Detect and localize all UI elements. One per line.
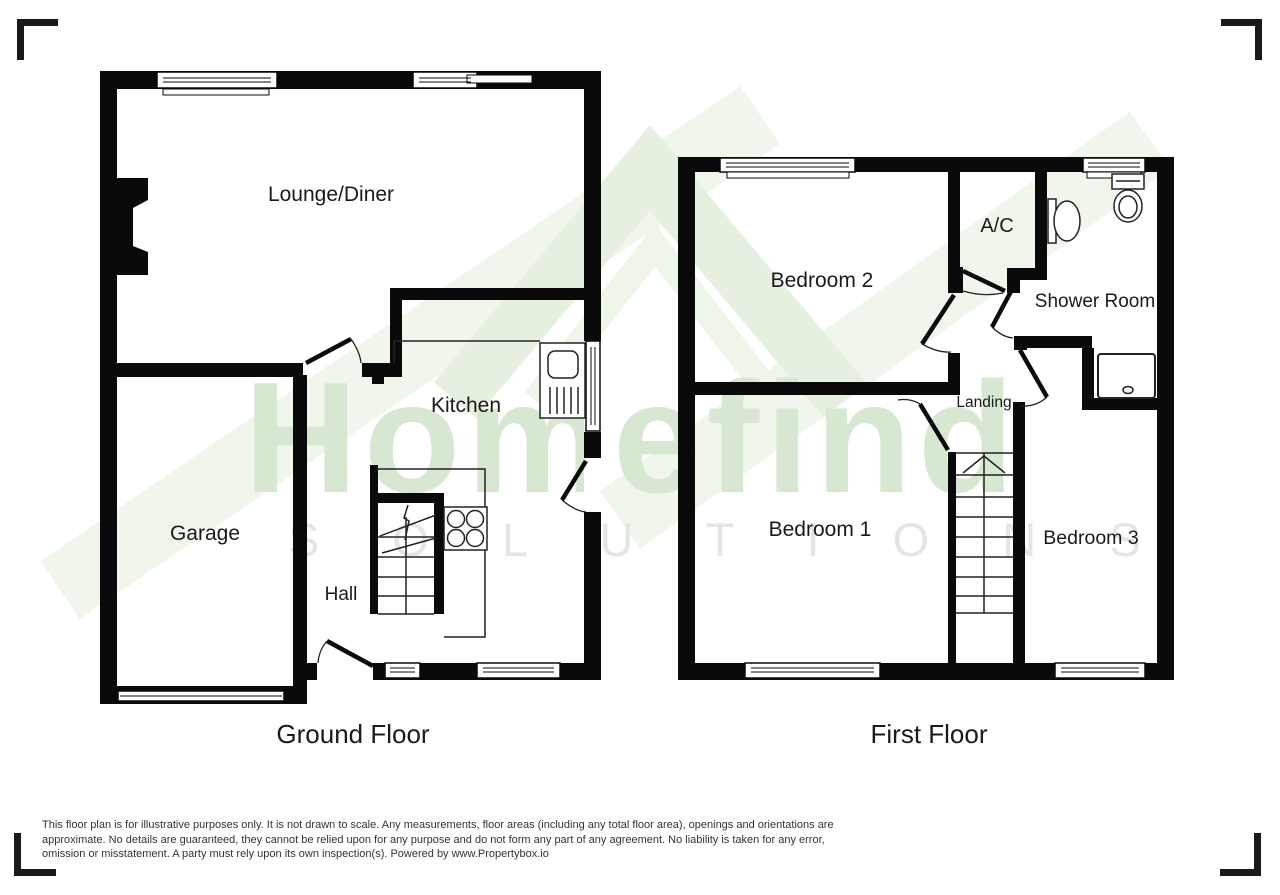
wall bbox=[390, 288, 402, 377]
door-opening bbox=[317, 663, 373, 680]
window bbox=[157, 72, 277, 88]
window bbox=[385, 663, 420, 678]
window bbox=[745, 663, 880, 678]
disclaimer-line-2: approximate. No details are guaranteed, … bbox=[42, 833, 942, 848]
disclaimer-line-3: omission or misstatement. A party must r… bbox=[42, 847, 942, 862]
room-label-ac: A/C bbox=[980, 215, 1013, 237]
room-label-landing: Landing bbox=[956, 394, 1011, 411]
room-label-lounge: Lounge/Diner bbox=[268, 183, 394, 206]
ground-floor-title: Ground Floor bbox=[276, 719, 430, 749]
window-sill bbox=[727, 172, 849, 178]
room-label-kitchen: Kitchen bbox=[431, 394, 501, 417]
room-label-bedroom2: Bedroom 2 bbox=[771, 269, 874, 292]
wall bbox=[678, 157, 695, 680]
wall bbox=[1157, 157, 1174, 680]
wall bbox=[948, 267, 963, 293]
wall bbox=[948, 353, 960, 395]
toilet-icon bbox=[1112, 174, 1144, 222]
window bbox=[1055, 663, 1145, 678]
chimney-recess bbox=[133, 200, 148, 252]
corner-bracket-top-left bbox=[21, 23, 59, 61]
door-leaf bbox=[1020, 350, 1047, 397]
room-label-hall: Hall bbox=[325, 584, 358, 605]
corner-bracket-bottom-right bbox=[1220, 833, 1258, 873]
window bbox=[467, 75, 532, 83]
disclaimer-line-1: This floor plan is for illustrative purp… bbox=[42, 818, 942, 833]
wall bbox=[1014, 336, 1027, 350]
wall bbox=[390, 288, 601, 300]
wall bbox=[695, 382, 956, 395]
room-label-bedroom3: Bedroom 3 bbox=[1043, 527, 1138, 549]
wall bbox=[370, 465, 378, 614]
watermark-brand-text: Homefind bbox=[244, 350, 1021, 526]
door-leaf bbox=[327, 641, 373, 666]
window bbox=[1083, 158, 1145, 172]
door-swing-arc bbox=[992, 327, 1013, 338]
window bbox=[720, 158, 855, 172]
window-sill bbox=[163, 89, 269, 95]
wall bbox=[1082, 348, 1094, 400]
room-label-shower: Shower Room bbox=[1035, 291, 1155, 312]
room-label-bedroom1: Bedroom 1 bbox=[769, 518, 872, 541]
first-floor-title: First Floor bbox=[871, 719, 988, 749]
wall bbox=[948, 452, 956, 663]
door-swing-arc bbox=[318, 641, 327, 663]
hob-icon bbox=[444, 507, 487, 550]
corner-bracket-top-right bbox=[1221, 23, 1259, 61]
wall bbox=[434, 493, 444, 614]
wall bbox=[1013, 402, 1025, 663]
wall bbox=[293, 375, 307, 686]
basin-icon bbox=[1048, 199, 1080, 243]
floorplan-page: Homefind S O L U T I O N S bbox=[0, 0, 1280, 895]
wall bbox=[948, 172, 960, 267]
window bbox=[586, 341, 600, 431]
room-label-garage: Garage bbox=[170, 522, 240, 545]
door-opening bbox=[584, 458, 601, 512]
wall bbox=[100, 71, 117, 704]
floorplan-drawing: Homefind S O L U T I O N S bbox=[0, 0, 1280, 895]
wall bbox=[1082, 398, 1157, 410]
shower-tray-icon bbox=[1098, 354, 1155, 398]
wall bbox=[372, 377, 384, 384]
window bbox=[477, 663, 560, 678]
wall bbox=[100, 363, 303, 377]
wall bbox=[1035, 172, 1047, 268]
watermark: Homefind S O L U T I O N S bbox=[60, 115, 1171, 590]
disclaimer-text: This floor plan is for illustrative purp… bbox=[42, 818, 942, 862]
